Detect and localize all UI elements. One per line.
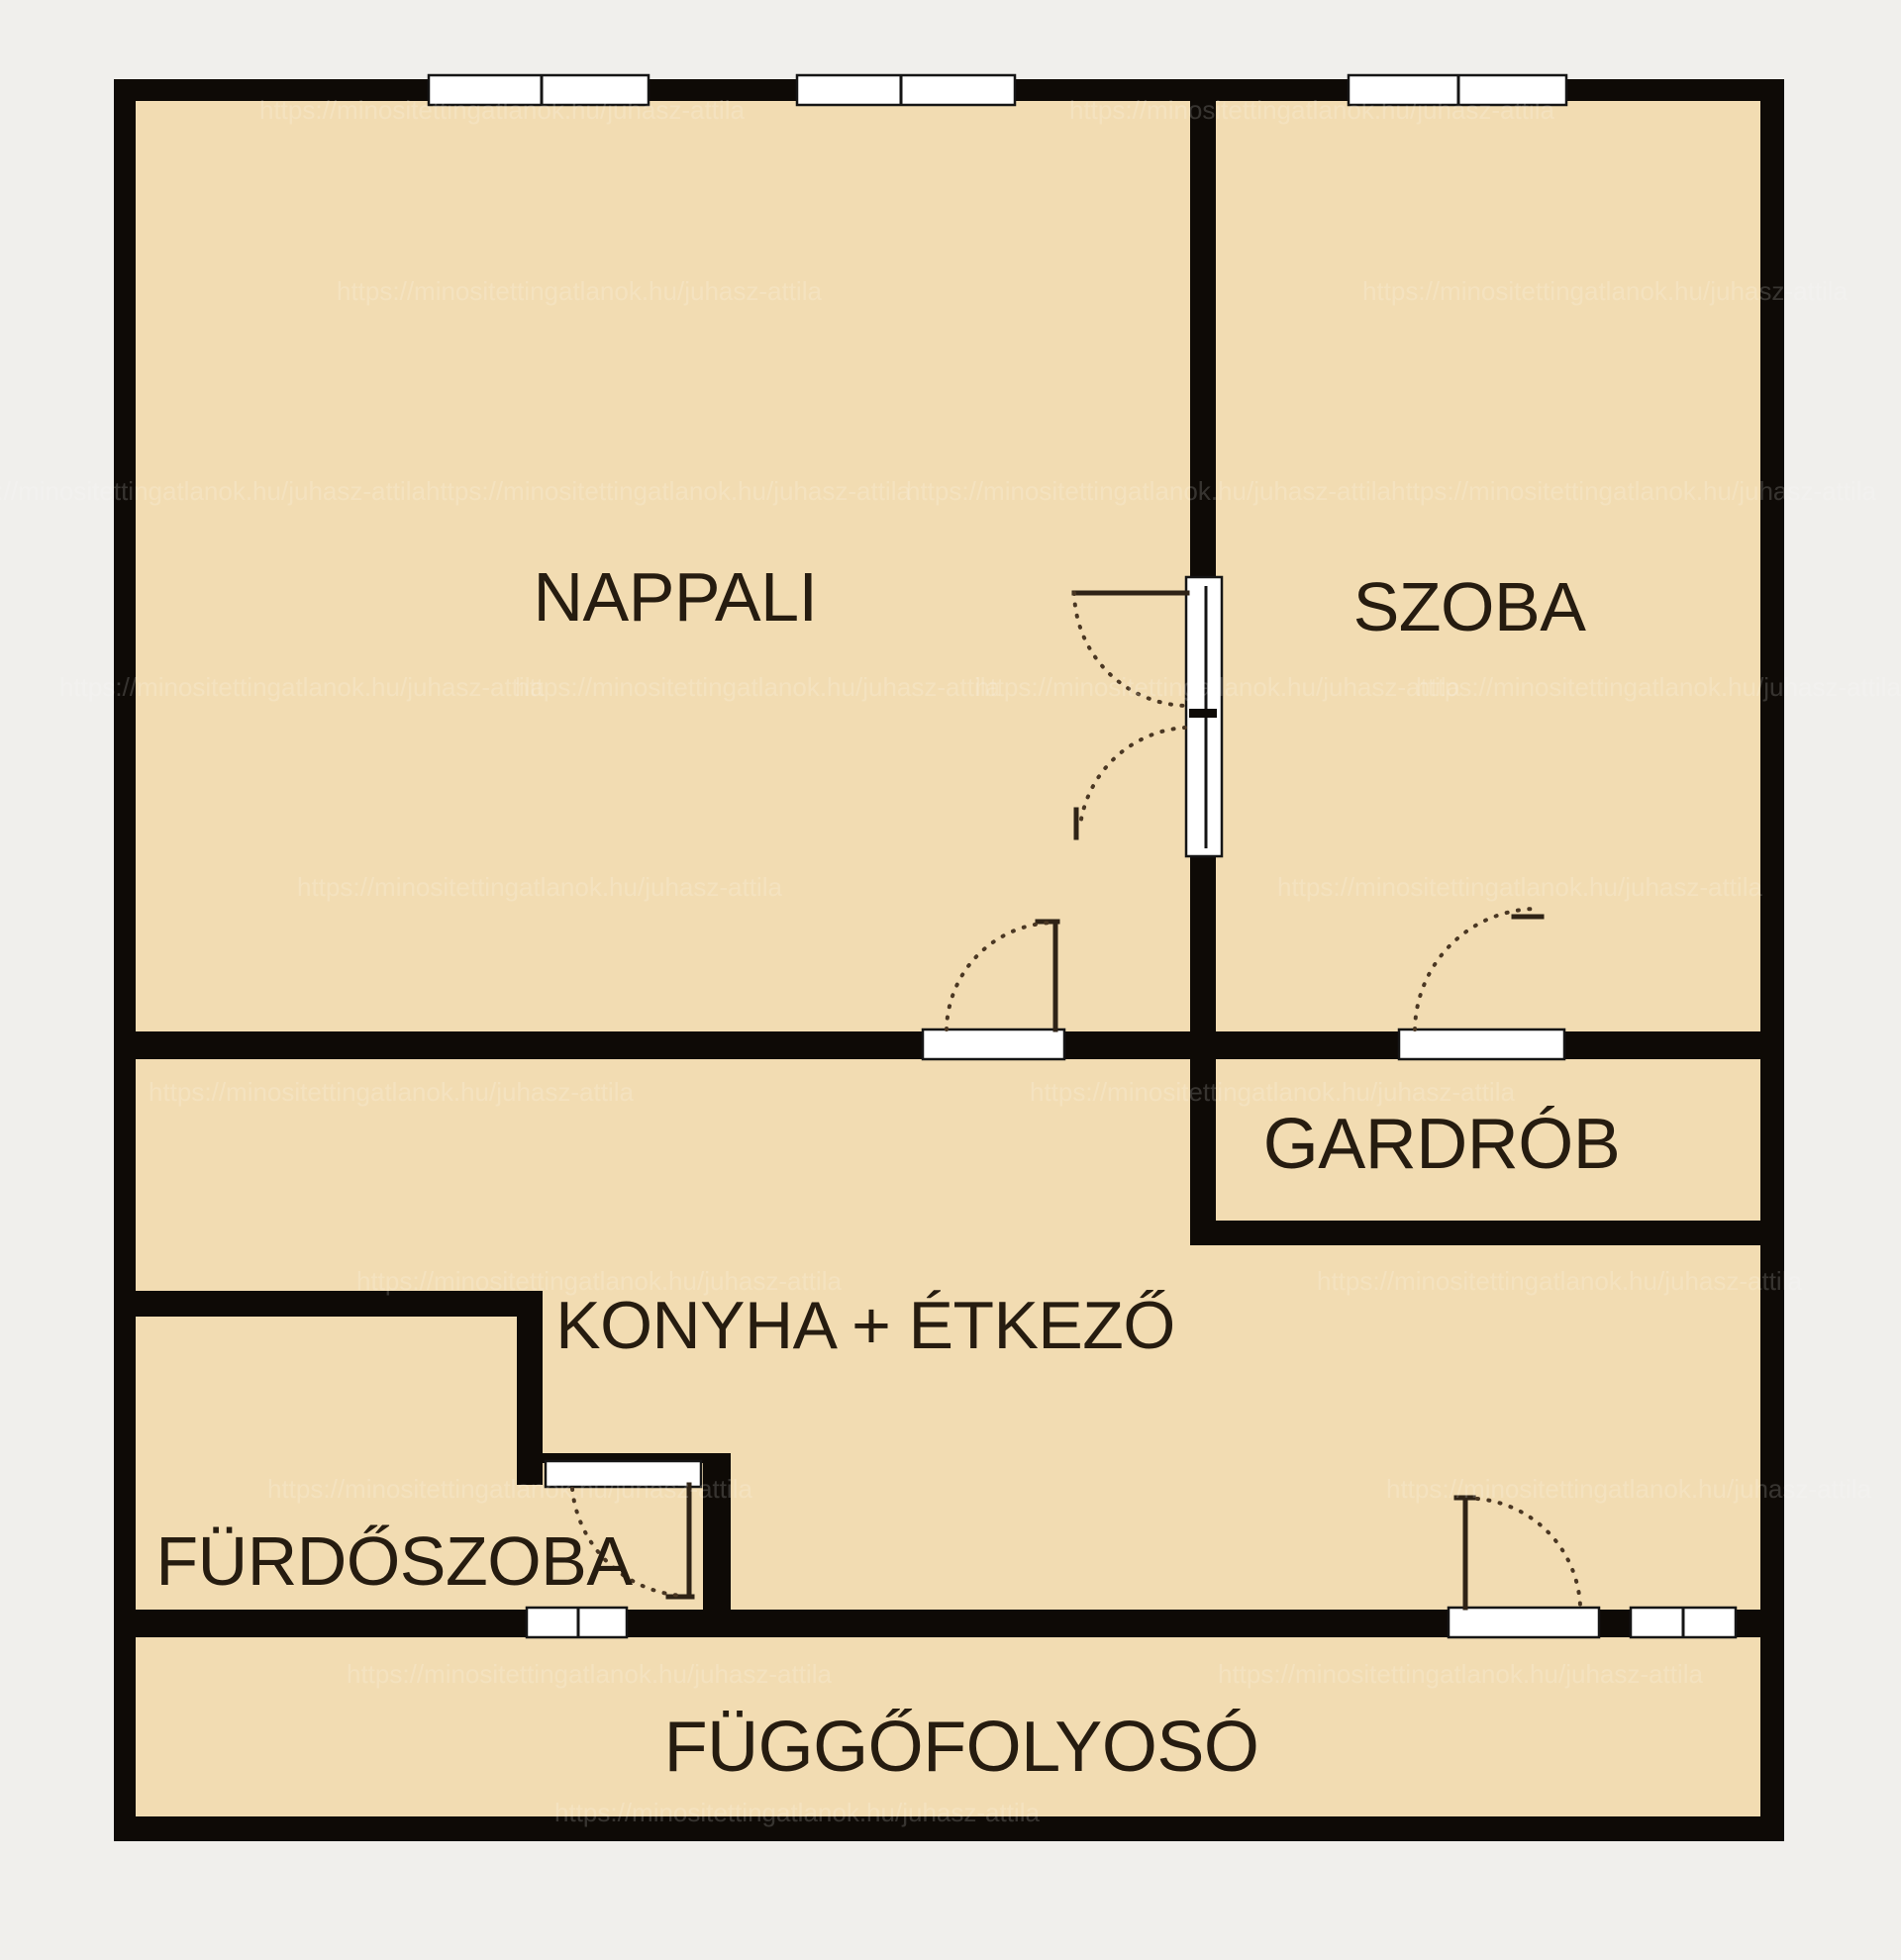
wall-corridor-top-d: [1736, 1610, 1760, 1637]
watermark-text: https://minositettingatlanok.hu/juhasz-a…: [337, 276, 822, 306]
room-label-furdoszoba: FÜRDŐSZOBA: [155, 1522, 633, 1600]
watermark-text: https://minositettingatlanok.hu/juhasz-a…: [1391, 476, 1876, 506]
wall-nappali-bottom-right: [1064, 1031, 1190, 1059]
double-door-center-stop: [1189, 709, 1217, 718]
wall-nappali-bottom-left: [114, 1031, 923, 1059]
door-opening-entry: [1449, 1608, 1599, 1637]
wall-outer-right: [1760, 79, 1784, 1841]
window-nappali-right: [797, 75, 1015, 105]
watermark-text: https://minositettingatlanok.hu/juhasz-a…: [259, 95, 745, 125]
watermark-text: https://minositettingatlanok.hu/juhasz-a…: [297, 872, 782, 902]
wall-nappali-szoba-lower: [1190, 852, 1216, 1245]
wall-gardrob-bottom: [1190, 1221, 1760, 1245]
watermark-text: https://minositettingatlanok.hu/juhasz-a…: [347, 1659, 832, 1689]
watermark-text: https://minositettingatlanok.hu/juhasz-a…: [515, 672, 1000, 702]
room-label-konyha-etkezo: KONYHA + ÉTKEZŐ: [555, 1288, 1174, 1363]
watermark-text: https://minositettingatlanok.hu/juhasz-a…: [426, 476, 911, 506]
wall-nappali-szoba-upper: [1190, 99, 1216, 581]
watermark-text: https://minositettingatlanok.hu/juhasz-a…: [1277, 872, 1762, 902]
wall-szoba-bottom-left: [1216, 1031, 1399, 1059]
watermark-text: https://minositettingatlanok.hu/juhasz-a…: [149, 1077, 634, 1107]
watermark-text: https://minositettingatlanok.hu/juhasz-a…: [1218, 1659, 1703, 1689]
wall-corridor-top-a: [114, 1610, 527, 1637]
wall-bathroom-right-upper: [517, 1291, 543, 1485]
watermark-text: https://minositettingatlanok.hu/juhasz-a…: [1069, 95, 1554, 125]
door-opening-nappali-konyha: [923, 1029, 1064, 1059]
wall-corridor-top-c: [1599, 1610, 1631, 1637]
room-label-gardrob: GARDRÓB: [1263, 1105, 1621, 1184]
wall-outer-left: [114, 79, 136, 1841]
room-label-nappali: NAPPALI: [534, 558, 818, 636]
door-opening-szoba-gardrob: [1399, 1029, 1564, 1059]
watermark-text: https://minositettingatlanok.hu/juhasz-a…: [59, 672, 545, 702]
watermark-text: https://minositettingatlanok.hu/juhasz-a…: [554, 1798, 1040, 1827]
watermark-text: https://minositettingatlanok.hu/juhasz-a…: [1362, 276, 1848, 306]
watermark-text: https://minositettingatlanok.hu/juhasz-a…: [356, 1266, 842, 1296]
wall-szoba-bottom-right: [1564, 1031, 1760, 1059]
watermark-text: https://minositettingatlanok.hu/juhasz-a…: [1030, 1077, 1515, 1107]
room-label-szoba: SZOBA: [1353, 568, 1587, 645]
watermark-text: https://minositettingatlanok.hu/juhasz-a…: [1317, 1266, 1802, 1296]
floorplan-canvas: NAPPALI SZOBA GARDRÓB KONYHA + ÉTKEZŐ FÜ…: [0, 0, 1901, 1960]
wall-corridor-top-b: [627, 1610, 1449, 1637]
room-label-fuggofolyoso: FÜGGŐFOLYOSÓ: [664, 1708, 1259, 1787]
watermark-text: https://minositettingatlanok.hu/juhasz-a…: [1386, 1474, 1871, 1504]
watermark-text: https://minositettingatlanok.hu/juhasz-a…: [267, 1474, 752, 1504]
watermark-text: https://minositettingatlanok.hu/juhasz-a…: [0, 476, 426, 506]
watermark-text: https://minositettingatlanok.hu/juhasz-a…: [1416, 672, 1901, 702]
watermark-text: https://minositettingatlanok.hu/juhasz-a…: [906, 476, 1391, 506]
floorplan-page: NAPPALI SZOBA GARDRÓB KONYHA + ÉTKEZŐ FÜ…: [0, 0, 1901, 1960]
watermark-text: https://minositettingatlanok.hu/juhasz-a…: [975, 672, 1460, 702]
